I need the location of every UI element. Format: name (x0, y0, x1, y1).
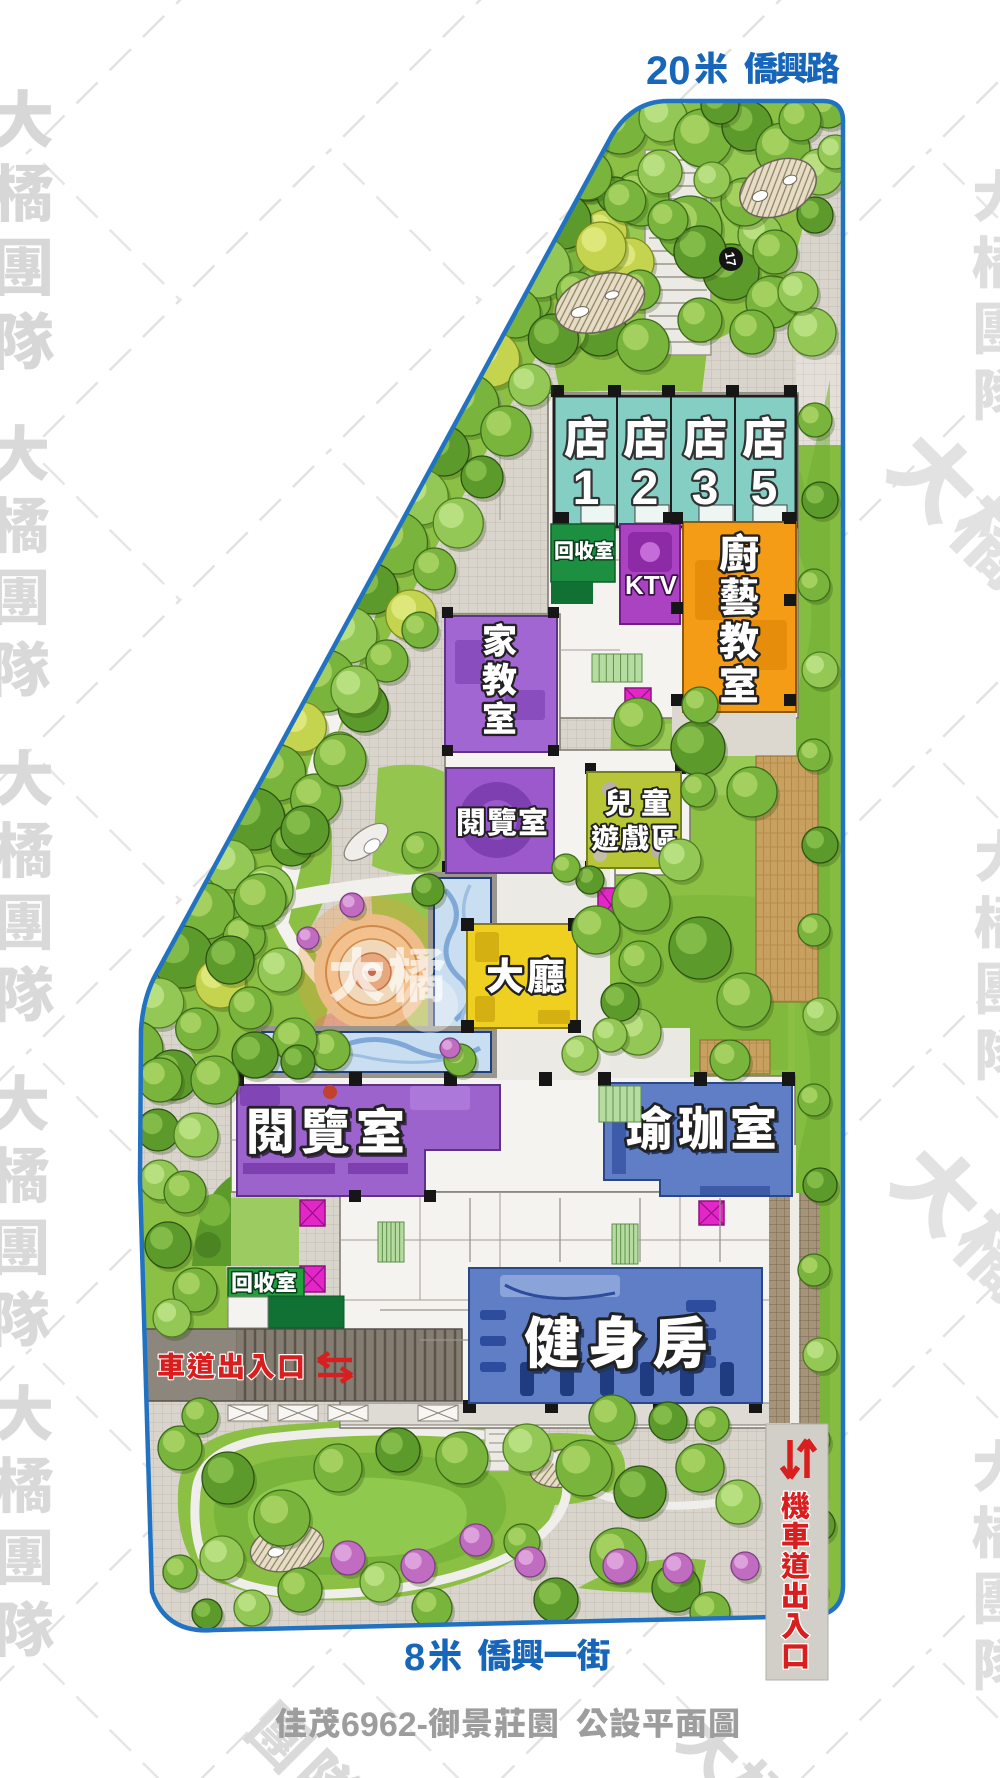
svg-text:KTV: KTV (625, 570, 678, 600)
svg-text:1: 1 (573, 462, 600, 515)
svg-text:17: 17 (722, 251, 739, 268)
svg-text:8: 8 (404, 1637, 425, 1679)
svg-text:2: 2 (632, 462, 659, 515)
svg-text:20: 20 (646, 49, 691, 93)
svg-text:6962-: 6962- (341, 1706, 428, 1744)
svg-text:5: 5 (751, 462, 778, 515)
svg-text:3: 3 (692, 462, 719, 515)
